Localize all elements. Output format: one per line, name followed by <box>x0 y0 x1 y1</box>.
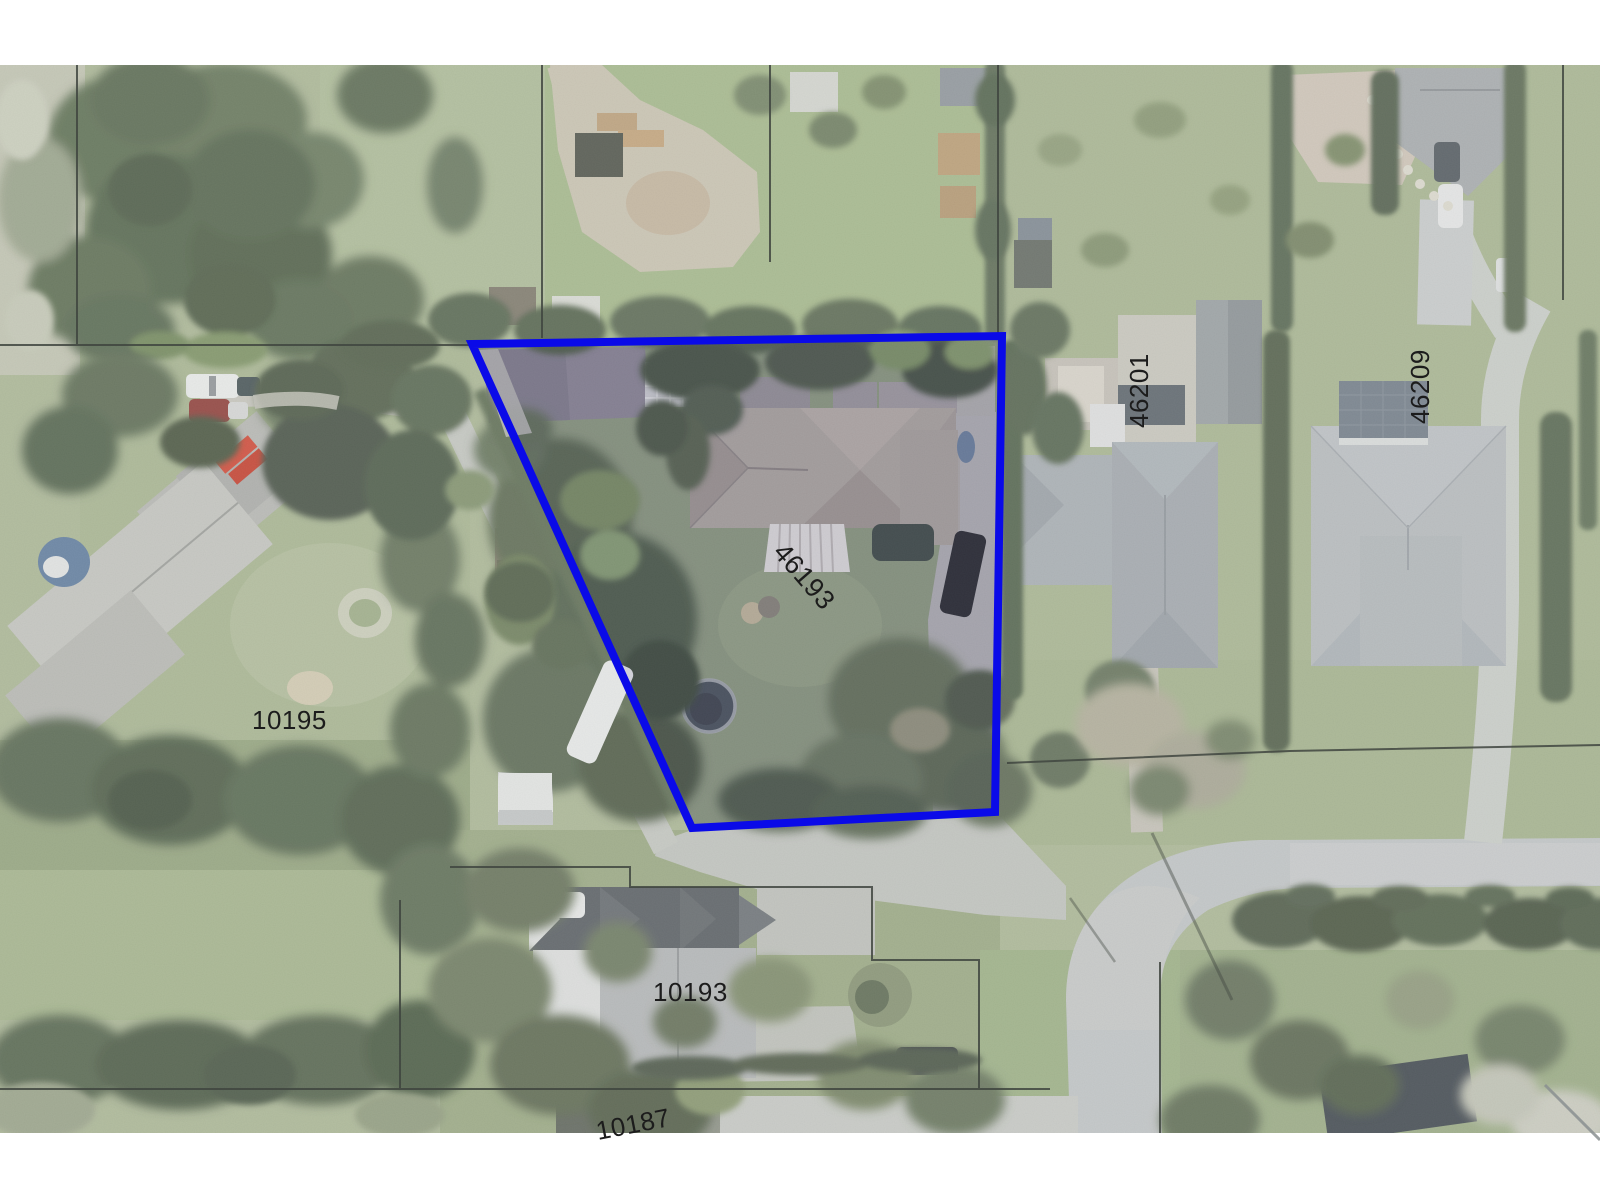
svg-text:10195: 10195 <box>252 705 327 735</box>
svg-text:46209: 46209 <box>1405 349 1435 424</box>
svg-text:46201: 46201 <box>1124 353 1154 428</box>
svg-text:10193: 10193 <box>653 977 728 1007</box>
